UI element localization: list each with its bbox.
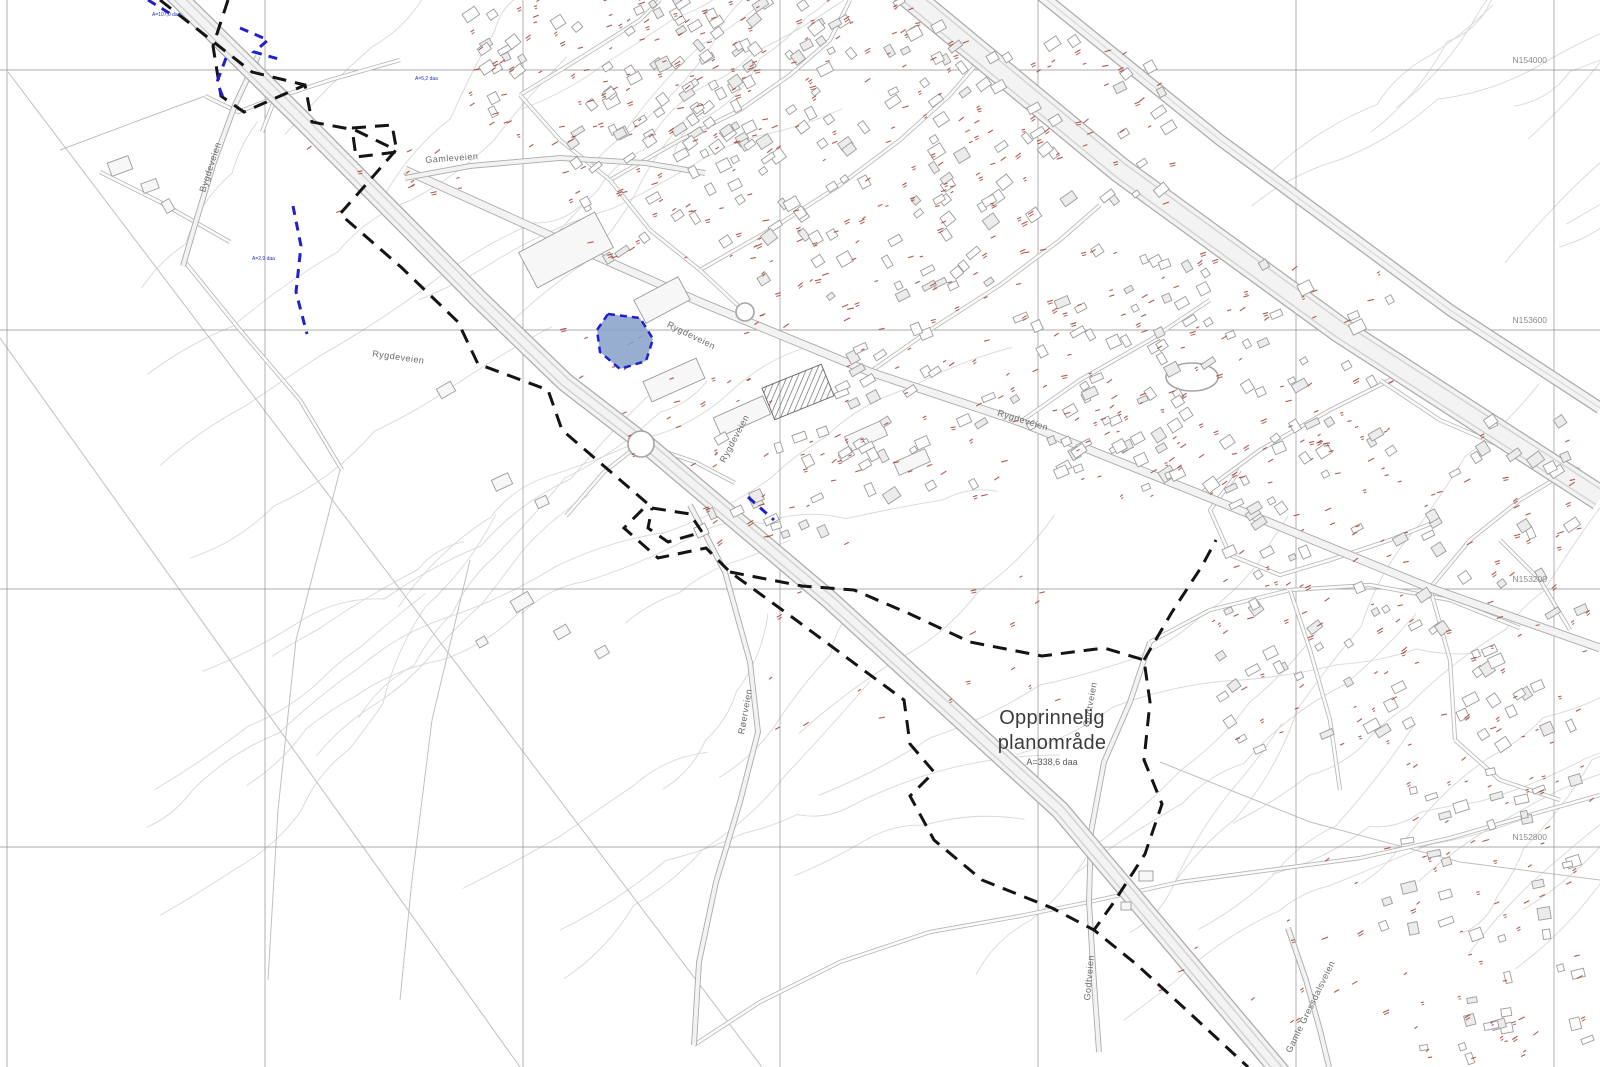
contour-lines (142, 0, 1600, 1020)
blue-features (148, 0, 774, 520)
road-label: Rygdeveien (666, 319, 718, 351)
plan-area-size: A=338,6 daa (998, 757, 1107, 767)
red-annotation-specks (307, 0, 1594, 1059)
road-label: Gamleveien (425, 151, 479, 165)
plan-area-label: Opprinnelig planområde A=338,6 daa (998, 706, 1107, 767)
plan-area-line1: Opprinnelig (998, 706, 1107, 731)
map-canvas: BygdeveienGamleveienRygdeveienRygdeveien… (0, 0, 1600, 1067)
area-annotation: A=107,0 daa (152, 12, 181, 18)
plan-boundary-spur (1144, 540, 1216, 660)
blue-area-polygon (597, 314, 653, 369)
area-annotation: A=2,9 daa (252, 256, 275, 262)
northing-label: N153600 (1512, 315, 1547, 325)
map-stage: BygdeveienGamleveienRygdeveienRygdeveien… (0, 0, 1600, 1067)
road-label: Rygdeveien (372, 348, 425, 365)
road-label: Røerveien (736, 688, 754, 735)
hatched-building (762, 364, 834, 419)
northing-label: N153200 (1512, 574, 1547, 584)
plan-area-line2: planområde (998, 731, 1107, 756)
northing-label: N152800 (1512, 832, 1547, 842)
road-label: Gamle Gressdalsveien (1284, 959, 1337, 1054)
area-annotation: A=5,2 daa (415, 76, 438, 82)
roundabouts (628, 303, 1218, 457)
plan-boundary-loop (352, 125, 397, 157)
northing-label: N154000 (1512, 55, 1547, 65)
